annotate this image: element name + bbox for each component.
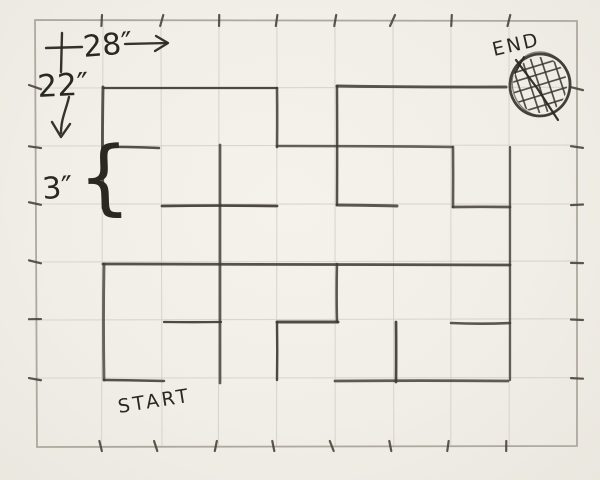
paper: 28″ 22″ 3″ { END START [0, 0, 600, 480]
tick-mark [571, 146, 583, 148]
tick-mark [154, 441, 157, 451]
tick-mark [215, 441, 217, 451]
wall-segment [277, 146, 452, 147]
maze-border [35, 20, 577, 447]
tick-mark [334, 15, 336, 26]
wall-segment [104, 380, 164, 381]
hatch-line [497, 55, 571, 78]
tick-mark [29, 260, 41, 263]
wall-segment [337, 86, 506, 87]
maze-walls [102, 86, 510, 383]
tick-mark [272, 441, 274, 451]
grid-line-h [35, 261, 577, 262]
grid-line-v [102, 20, 104, 446]
dimension-cross-horizontal [46, 47, 82, 48]
tick-mark [101, 15, 102, 26]
height-dimension-label: 22″ [37, 66, 90, 105]
tick-mark [29, 202, 41, 205]
dimension-cross-vertical [61, 33, 62, 72]
start-label: START [116, 385, 192, 418]
cell-size-brace: { [76, 129, 131, 226]
tick-marks [29, 15, 583, 451]
tick-mark [160, 15, 163, 26]
tick-mark [276, 15, 278, 26]
tick-mark [29, 146, 41, 148]
grid-line-h [35, 319, 577, 320]
tick-mark [447, 441, 448, 451]
tick-mark [571, 87, 583, 90]
grid-line-v [393, 20, 394, 446]
cell-size-label: 3″ [41, 170, 74, 207]
tick-mark [451, 15, 452, 26]
maze-border-rect [35, 20, 577, 447]
wall-segment [451, 323, 510, 324]
wall-segment [337, 205, 397, 206]
tick-mark [508, 15, 511, 26]
tick-mark [571, 205, 583, 206]
wall-segment [103, 264, 510, 265]
tick-mark [571, 378, 583, 379]
width-dimension-label: 28″ [82, 26, 134, 65]
end-label: END [490, 29, 542, 61]
tick-mark [389, 441, 391, 451]
maze-sketch-svg: 28″ 22″ 3″ { END START [0, 0, 600, 480]
